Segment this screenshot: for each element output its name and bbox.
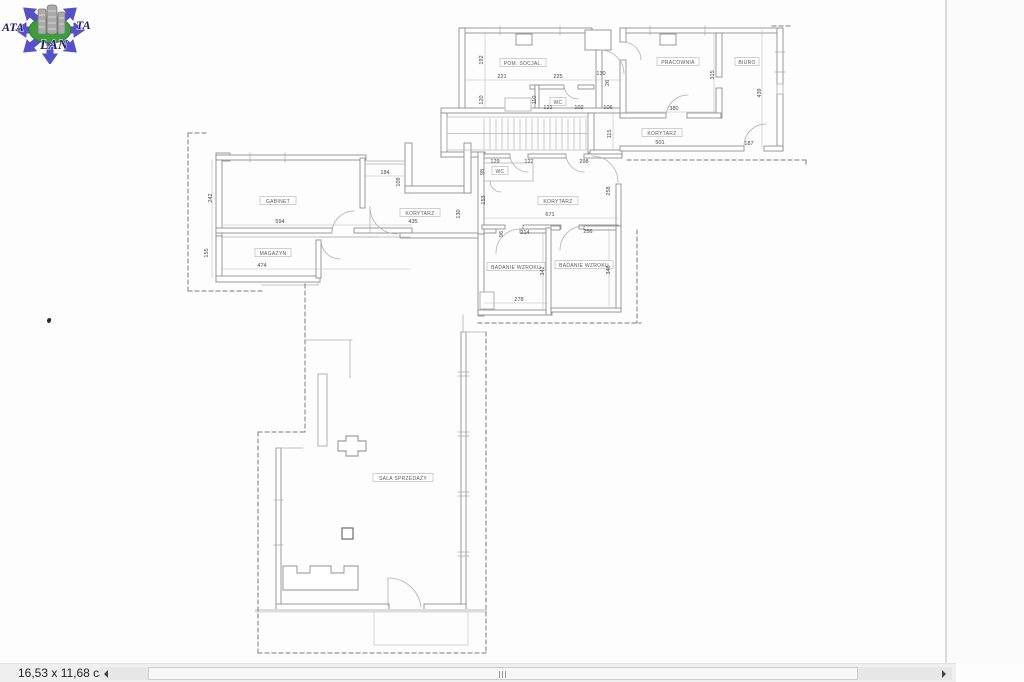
logo-text-left: ATA bbox=[1, 20, 24, 34]
dimension-label: 501 bbox=[655, 140, 664, 146]
dimension-label: 120 bbox=[479, 95, 485, 104]
dimension-label: 435 bbox=[408, 219, 417, 225]
room-label: BIURO bbox=[738, 60, 755, 66]
section-band bbox=[255, 609, 487, 613]
room-label: MAGAZYN bbox=[260, 251, 287, 257]
room-label: KORYTARZ bbox=[543, 199, 572, 205]
dimension-label: 214 bbox=[520, 230, 529, 236]
dimension-label: 106 bbox=[603, 105, 612, 111]
dimension-label: 109 bbox=[396, 177, 402, 186]
app-window: POM. SOCJAL.WCPRACOWNIABIUROKORYTARZGABI… bbox=[0, 0, 1024, 681]
dimension-label: 153 bbox=[481, 195, 487, 204]
logo-text-bottom: LAN bbox=[39, 38, 69, 53]
dimension-label: 594 bbox=[275, 219, 284, 225]
thin-walls bbox=[222, 26, 785, 645]
dimension-label: 225 bbox=[553, 74, 562, 80]
page-margin-area bbox=[947, 0, 1024, 664]
status-bar: 16,53 x 11,68 cale bbox=[0, 663, 956, 682]
dimension-label: 130 bbox=[456, 209, 462, 218]
dimension-label: 278 bbox=[514, 297, 523, 303]
room-label: KORYTARZ bbox=[405, 211, 434, 217]
room-label: KORYTARZ bbox=[647, 131, 676, 137]
room-label: GABINET bbox=[266, 199, 290, 205]
dimension-label: 258 bbox=[606, 186, 612, 195]
room-label: WC bbox=[554, 100, 563, 106]
dimension-label: 671 bbox=[545, 212, 554, 218]
scroll-right-icon[interactable] bbox=[942, 670, 946, 678]
dimension-label: 256 bbox=[583, 229, 592, 235]
logo-watermark: ATA TA LAN bbox=[0, 0, 104, 64]
room-label: BADANIE WZROKU bbox=[559, 263, 609, 269]
dimension-label: 315 bbox=[710, 70, 716, 79]
dimension-label: 122 bbox=[524, 159, 533, 165]
scrollbar-thumb[interactable] bbox=[148, 667, 858, 680]
logo-text-right: TA bbox=[76, 18, 91, 32]
dimension-label: 342 bbox=[540, 266, 546, 275]
room-label: BADANIE WZROKU bbox=[491, 265, 541, 271]
room-label: WC bbox=[496, 169, 505, 175]
dimension-label: 96 bbox=[499, 231, 505, 237]
dimension-label: 221 bbox=[497, 74, 506, 80]
dimension-label: 242 bbox=[208, 193, 214, 202]
dimension-label: 474 bbox=[257, 263, 266, 269]
horizontal-scrollbar[interactable] bbox=[100, 667, 952, 680]
room-label: POM. SOCJAL. bbox=[504, 61, 543, 67]
dimension-label: 26 bbox=[605, 80, 611, 86]
dimension-label: 380 bbox=[669, 106, 678, 112]
dimension-label: 346 bbox=[606, 265, 612, 274]
dimension-label: 130 bbox=[596, 71, 605, 77]
page-edge-divider bbox=[945, 0, 947, 664]
scroll-left-icon[interactable] bbox=[104, 670, 108, 678]
room-labels: POM. SOCJAL.WCPRACOWNIABIUROKORYTARZGABI… bbox=[255, 58, 759, 483]
dimension-label: 121 bbox=[543, 105, 552, 111]
dimension-label: 110 bbox=[532, 96, 538, 105]
dimension-label: 184 bbox=[380, 170, 389, 176]
dimension-label: 115 bbox=[607, 130, 613, 139]
dimension-label: 298 bbox=[579, 159, 588, 165]
room-label: PRACOWNIA bbox=[661, 60, 695, 66]
dimension-label: 192 bbox=[479, 55, 485, 64]
dimension-label: 439 bbox=[757, 88, 763, 97]
room-label: SALA SPRZEDAŻY bbox=[379, 475, 427, 482]
scrollbar-grip-icon bbox=[499, 671, 507, 678]
dimension-label: 187 bbox=[744, 141, 753, 147]
dimension-label: 102 bbox=[574, 105, 583, 111]
floorplan-canvas: POM. SOCJAL.WCPRACOWNIABIUROKORYTARZGABI… bbox=[0, 0, 1024, 664]
dimension-label: 155 bbox=[204, 248, 210, 257]
walls bbox=[216, 28, 783, 610]
door-arcs bbox=[321, 42, 766, 607]
dimension-label: 129 bbox=[490, 159, 499, 165]
dimension-label: 98 bbox=[480, 169, 486, 175]
